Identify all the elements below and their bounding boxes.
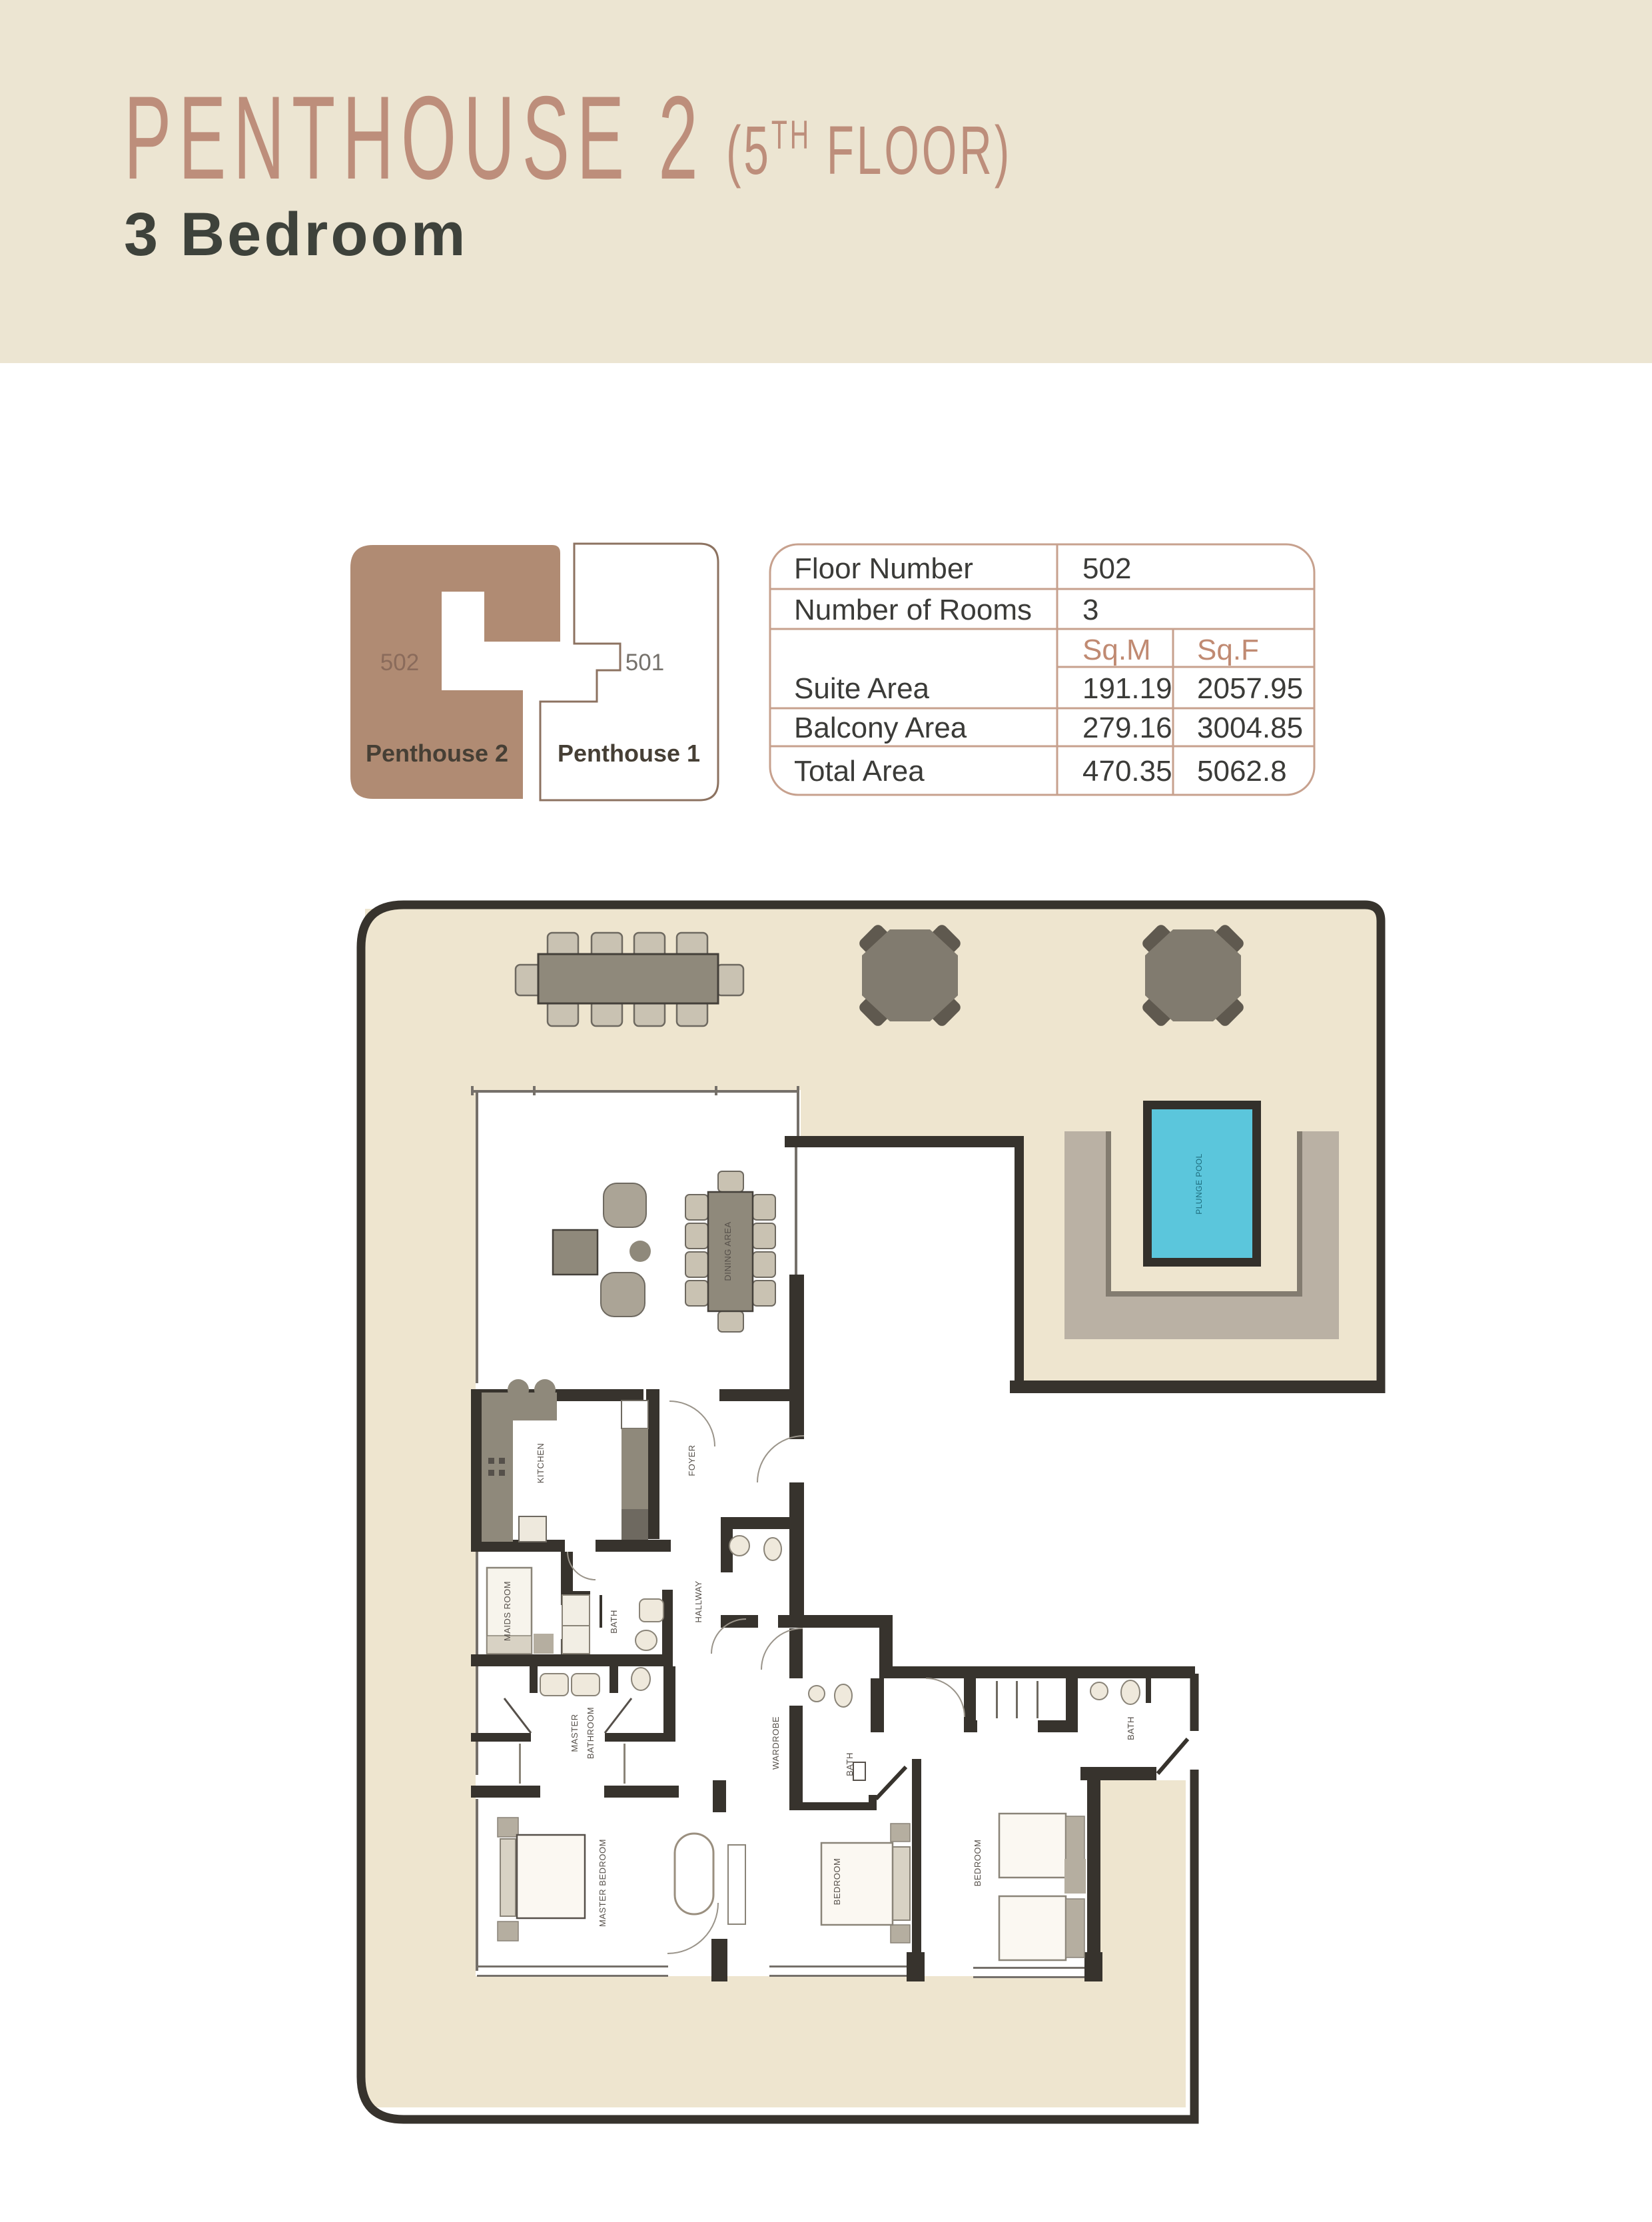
svg-text:BEDROOM: BEDROOM — [832, 1858, 842, 1906]
svg-text:MAIDS ROOM: MAIDS ROOM — [502, 1581, 512, 1641]
svg-text:FOYER: FOYER — [687, 1444, 697, 1476]
svg-text:BATH: BATH — [1126, 1716, 1136, 1740]
svg-text:KITCHEN: KITCHEN — [536, 1443, 546, 1484]
svg-text:PLUNGE POOL: PLUNGE POOL — [1194, 1153, 1204, 1215]
svg-text:DINING AREA: DINING AREA — [723, 1221, 733, 1281]
svg-text:MASTER: MASTER — [570, 1714, 580, 1752]
svg-text:BATHROOM: BATHROOM — [586, 1707, 596, 1759]
svg-text:BATH: BATH — [609, 1610, 619, 1634]
svg-text:HALLWAY: HALLWAY — [693, 1580, 703, 1622]
svg-text:BEDROOM: BEDROOM — [973, 1840, 983, 1887]
svg-text:WARDROBE: WARDROBE — [771, 1716, 781, 1770]
svg-text:MASTER BEDROOM: MASTER BEDROOM — [598, 1839, 608, 1927]
svg-text:BATH: BATH — [845, 1752, 855, 1776]
